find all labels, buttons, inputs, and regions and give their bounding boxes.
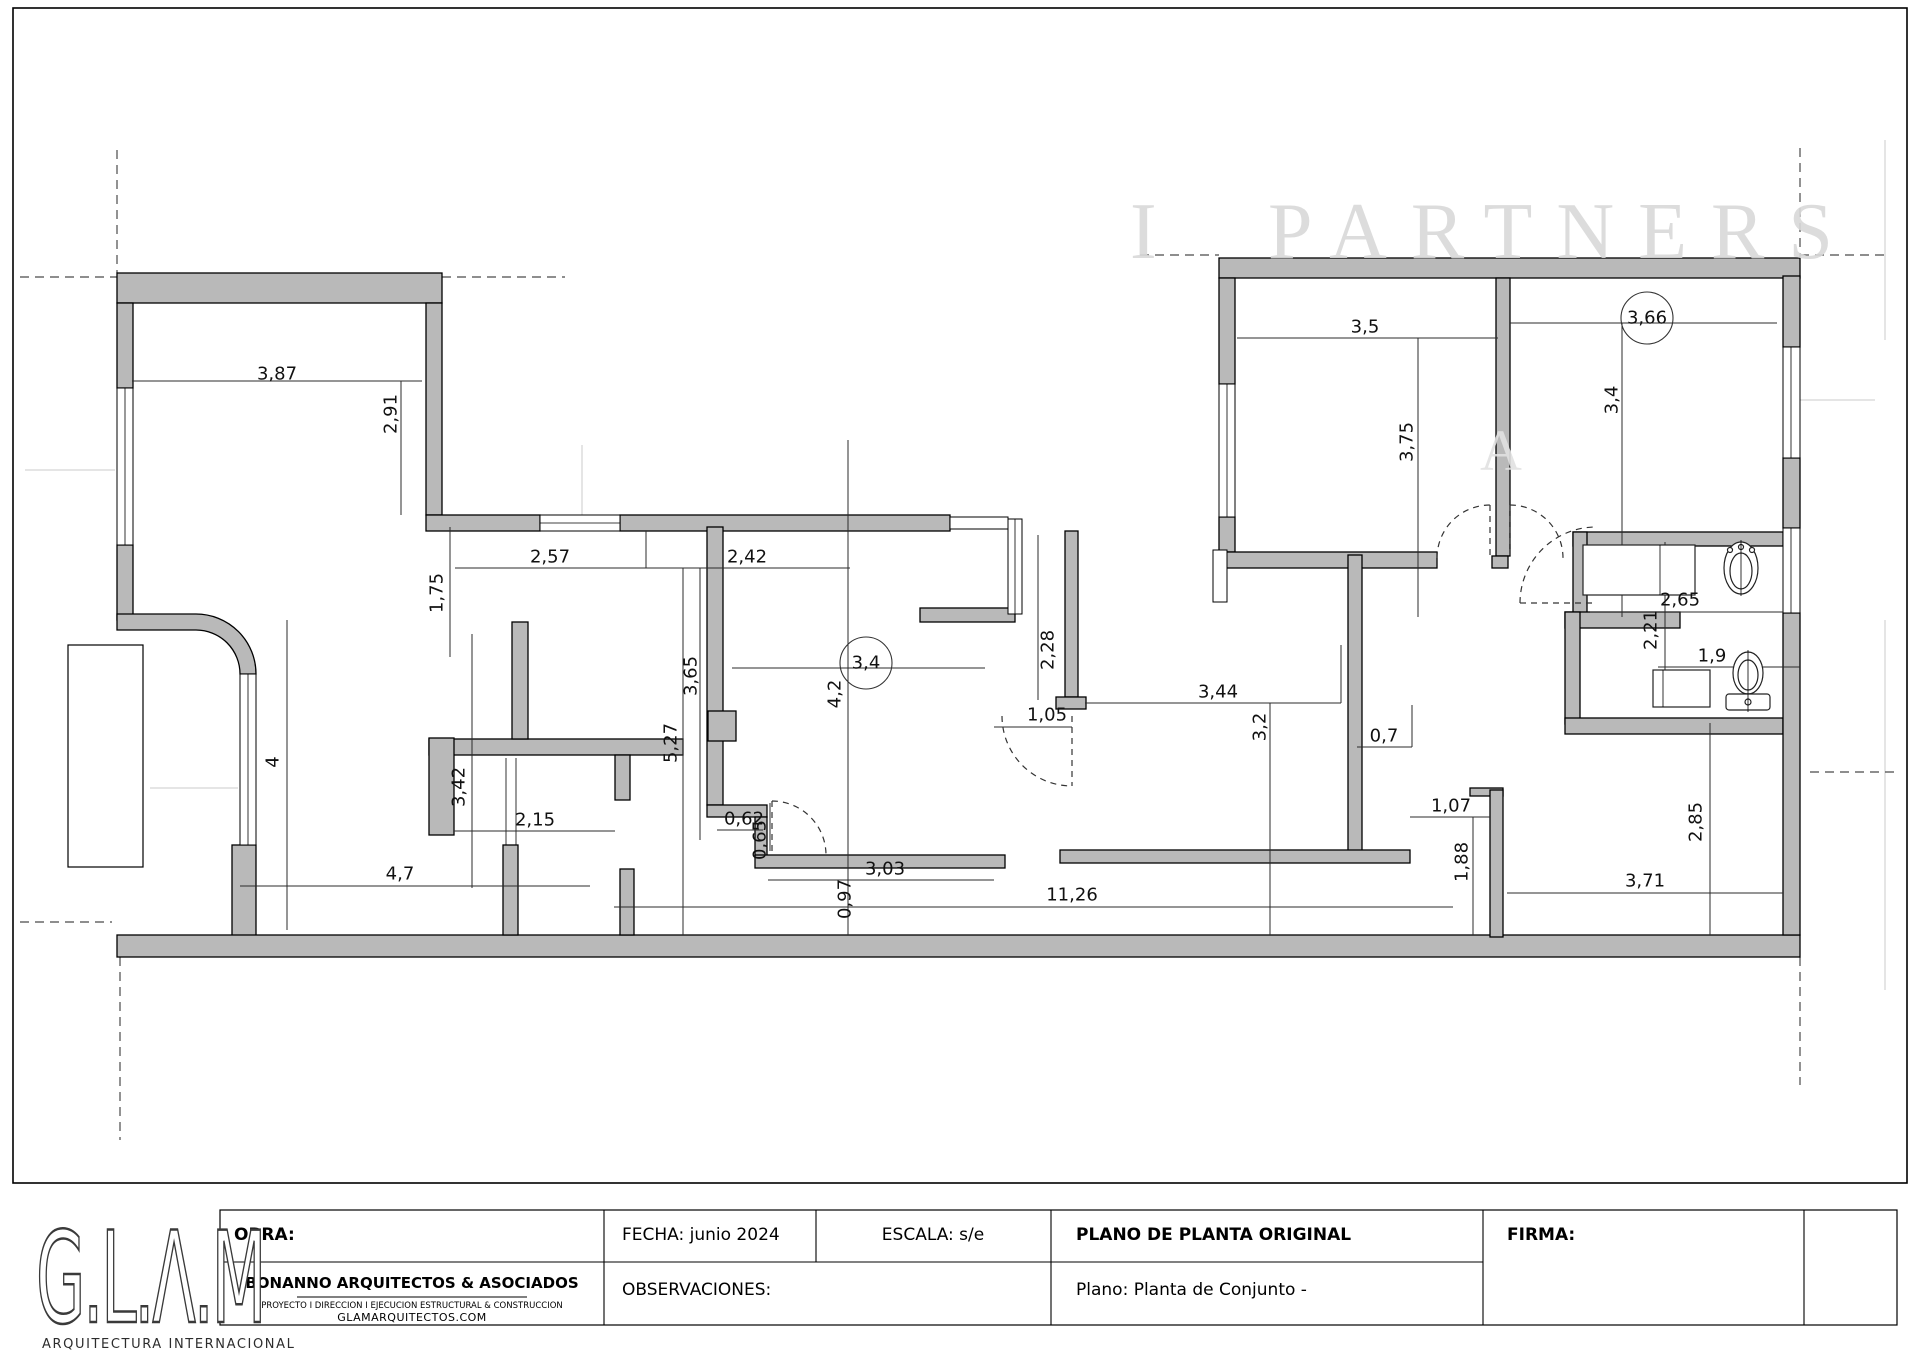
dimension-label: 4,2 — [825, 680, 846, 709]
dimension-label: 5,27 — [661, 723, 682, 763]
bidet-icon — [1724, 540, 1758, 596]
watermark-bar: I — [1130, 188, 1181, 276]
logo-text: G.L.Λ.M — [36, 1205, 264, 1353]
company-name: BONANNO ARQUITECTOS & ASOCIADOS — [245, 1274, 578, 1292]
dimension-label: 2,57 — [530, 547, 570, 568]
door-arc — [1510, 505, 1563, 558]
logo-subtitle: ARQUITECTURA INTERNACIONAL — [42, 1337, 295, 1352]
dimension-label: 4 — [263, 756, 284, 767]
dimension-label: 0,97 — [835, 879, 856, 919]
watermark-text: PARTNERS — [1268, 188, 1857, 276]
dimension-label: 1,88 — [1452, 842, 1473, 882]
bay-window-box — [68, 645, 143, 867]
drawing-sheet: I PARTNERS A — [0, 0, 1920, 1357]
entry-door-leaf — [950, 517, 1008, 529]
walls — [117, 258, 1800, 957]
door-arcs — [772, 505, 1596, 855]
dimension-label: 0,7 — [1370, 726, 1399, 747]
watermark-partial: A — [1480, 418, 1522, 483]
dimension-label: 3,42 — [449, 767, 470, 807]
dimension-label: 3,87 — [257, 364, 297, 385]
dimension-label: 3,71 — [1625, 871, 1665, 892]
dimension-label: 1,05 — [1027, 705, 1067, 726]
dimension-label: 2,15 — [515, 810, 555, 831]
dimension-label: 3,5 — [1351, 317, 1380, 338]
fecha-value: FECHA: junio 2024 — [622, 1225, 780, 1245]
dimension-label: 3,03 — [865, 859, 905, 880]
dimension-label: 2,28 — [1038, 630, 1059, 670]
dimension-label: 3,66 — [1627, 308, 1667, 329]
vanity-counter — [1583, 545, 1695, 595]
dimension-label: 3,75 — [1397, 422, 1418, 462]
dimension-label: 1,07 — [1431, 796, 1471, 817]
windows — [117, 347, 1800, 845]
dimension-label: 3,4 — [852, 653, 881, 674]
dimension-label: 2,42 — [727, 547, 767, 568]
dimension-label: 3,4 — [1602, 386, 1623, 415]
dimension-label: 3,44 — [1198, 682, 1238, 703]
dimension-label: 4,7 — [386, 864, 415, 885]
dimension-label: 0,65 — [750, 820, 771, 860]
dimension-label: 3,65 — [681, 656, 702, 696]
window — [1783, 528, 1800, 613]
door-arc — [772, 801, 826, 855]
plano-name: Plano: Planta de Conjunto - — [1076, 1280, 1307, 1300]
door-arc — [1437, 505, 1490, 558]
floor-plan-svg: I PARTNERS A — [0, 0, 1920, 1357]
dimension-label: 3,2 — [1250, 713, 1271, 742]
window — [1783, 347, 1800, 458]
watermark: I PARTNERS A — [1130, 188, 1857, 483]
escala-value: ESCALA: s/e — [882, 1225, 984, 1245]
firma-label: FIRMA: — [1507, 1225, 1575, 1245]
dimension-label: 1,9 — [1698, 646, 1727, 667]
dimension-label: 2,85 — [1686, 802, 1707, 842]
company-logo: G.L.Λ.M ARQUITECTURA INTERNACIONAL — [36, 1205, 295, 1353]
closet — [1213, 550, 1227, 602]
company-website: GLAMARQUITECTOS.COM — [337, 1311, 487, 1324]
dimension-label: 2,21 — [1641, 610, 1662, 650]
dimension-label: 1,75 — [427, 573, 448, 613]
company-tagline: PROYECTO I DIRECCION I EJECUCION ESTRUCT… — [261, 1301, 563, 1311]
toilet-icon — [1726, 650, 1770, 712]
shower-tray — [1653, 670, 1710, 707]
observaciones-label: OBSERVACIONES: — [622, 1280, 771, 1300]
dimension-label: 11,26 — [1046, 885, 1098, 906]
dimension-label: 2,91 — [381, 394, 402, 434]
plano-title: PLANO DE PLANTA ORIGINAL — [1076, 1225, 1351, 1245]
dimension-label: 2,65 — [1660, 590, 1700, 611]
